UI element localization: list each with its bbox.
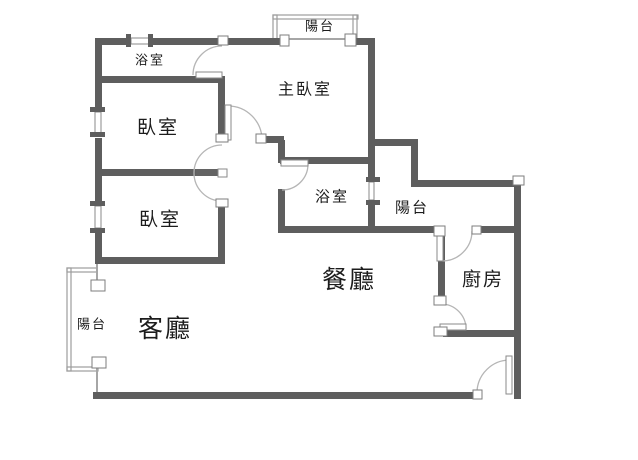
window <box>369 182 374 200</box>
wall <box>95 38 102 107</box>
door-frame-post <box>280 35 289 46</box>
room-label-dining-room: 餐廳 <box>322 265 376 294</box>
wall <box>98 169 198 176</box>
window-tick <box>148 34 153 47</box>
door-frame-post <box>434 327 447 336</box>
room-label-living-room: 客廳 <box>138 314 192 343</box>
wall <box>514 183 521 399</box>
room-label-bedroom-2: 臥室 <box>139 209 181 231</box>
floor-plan: 陽台浴室主臥室臥室臥室浴室陽台餐廳廚房客廳陽台 <box>0 0 638 460</box>
window-tick <box>90 201 105 206</box>
room-label-bathroom-master: 浴室 <box>135 53 165 69</box>
window-tick <box>366 177 380 182</box>
thin-wall-line <box>96 263 98 281</box>
door-frame-post <box>473 390 482 399</box>
wall <box>218 76 225 136</box>
wall <box>95 257 225 264</box>
door-frame-post <box>345 34 356 46</box>
wall <box>93 392 477 399</box>
window-tick <box>126 34 131 47</box>
wall <box>218 206 225 264</box>
door-frame-post <box>91 280 105 291</box>
door-frame-post <box>256 134 266 143</box>
entry-door-leaf <box>506 356 512 394</box>
wall <box>411 180 521 187</box>
window-tick <box>90 228 105 233</box>
door-frame-post <box>513 176 524 185</box>
window <box>95 112 101 133</box>
room-label-balcony-top: 陽台 <box>305 20 335 35</box>
wall <box>370 139 418 146</box>
window-tick <box>90 132 105 137</box>
door-frame-post <box>472 226 481 234</box>
room-label-balcony-left: 陽台 <box>77 318 107 333</box>
wall <box>278 226 438 233</box>
room-label-bedroom-1: 臥室 <box>137 117 179 139</box>
room-label-bathroom-2: 浴室 <box>315 188 349 206</box>
door-frame-post <box>216 134 228 142</box>
door-frame-post <box>218 36 228 45</box>
room-label-kitchen: 廚房 <box>462 268 504 291</box>
window-tick <box>366 200 380 205</box>
room-label-master-bedroom: 主臥室 <box>278 80 332 99</box>
door-frame-post <box>92 357 106 368</box>
thin-wall-line <box>289 38 346 40</box>
bathroom-2-door-leaf <box>281 160 308 166</box>
wall <box>443 330 519 337</box>
window <box>131 38 149 44</box>
floor-plan-canvas: 陽台浴室主臥室臥室臥室浴室陽台餐廳廚房客廳陽台 <box>0 0 638 460</box>
door-frame-post <box>216 199 228 207</box>
window <box>95 206 101 228</box>
bathroom-master-door-leaf <box>196 72 222 78</box>
wall <box>228 38 282 45</box>
wall <box>479 226 519 233</box>
door-frame-post <box>434 296 446 305</box>
wall <box>153 38 220 45</box>
thin-wall-line <box>96 367 98 393</box>
kitchen-north-door-leaf <box>437 234 443 261</box>
room-label-balcony-right: 陽台 <box>395 199 429 217</box>
bedroom-doors-leaf-cap <box>218 169 227 177</box>
window-tick <box>90 107 105 112</box>
door-frame-post <box>434 226 445 236</box>
